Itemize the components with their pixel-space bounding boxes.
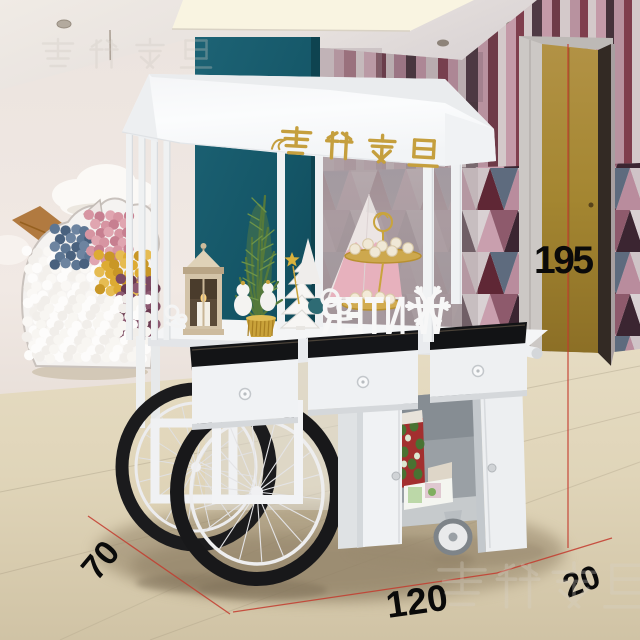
svg-text:W NTER: W NTER (321, 286, 445, 346)
svg-text:120: 120 (383, 577, 450, 626)
svg-text:195: 195 (534, 239, 593, 282)
